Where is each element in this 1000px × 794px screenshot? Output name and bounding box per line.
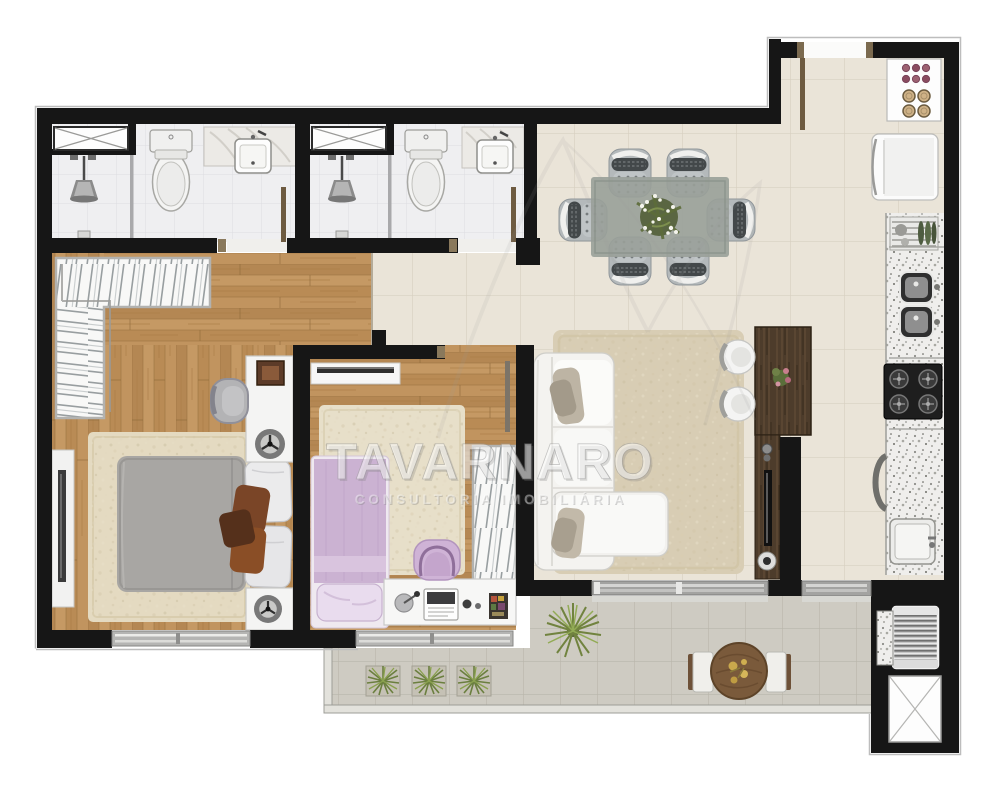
svg-text:TAVARNARO: TAVARNARO [326, 433, 654, 490]
svg-text:CONSULTORIA IMOBILIÁRIA: CONSULTORIA IMOBILIÁRIA [355, 492, 627, 507]
